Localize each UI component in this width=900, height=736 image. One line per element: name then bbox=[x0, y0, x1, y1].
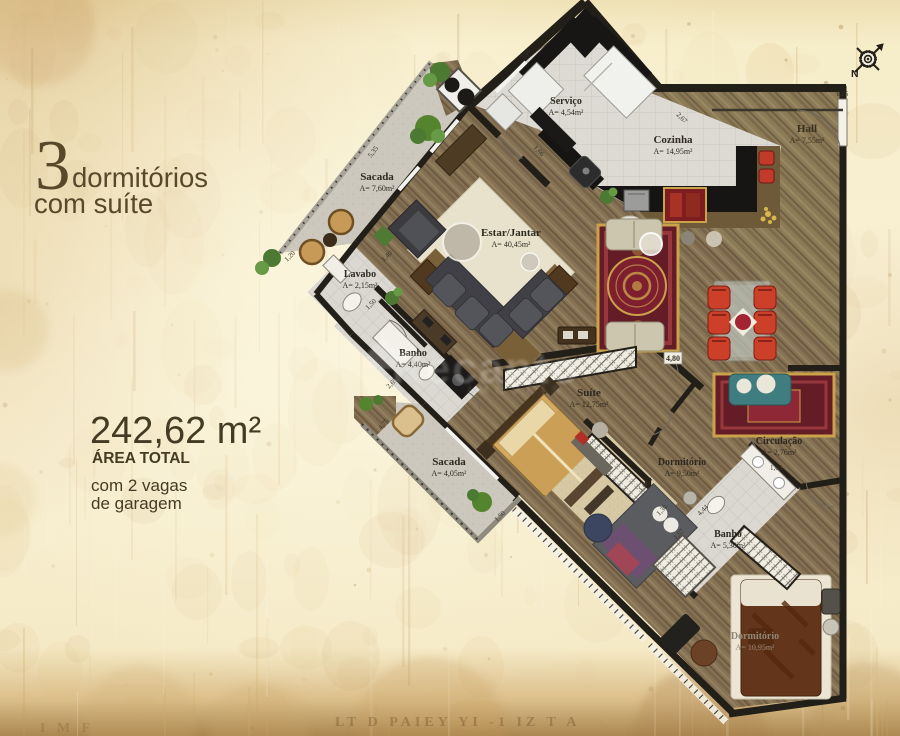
svg-text:Circulação: Circulação bbox=[756, 436, 802, 447]
svg-text:A= 7,55m²: A= 7,55m² bbox=[790, 136, 826, 145]
svg-text:com 2 vagas: com 2 vagas bbox=[91, 476, 187, 495]
svg-text:4,80: 4,80 bbox=[666, 354, 680, 363]
svg-text:1,05: 1,05 bbox=[770, 464, 783, 472]
svg-text:A= 7,60m²: A= 7,60m² bbox=[360, 184, 396, 193]
svg-text:Estar/Jantar: Estar/Jantar bbox=[481, 227, 541, 239]
svg-text:Sacada: Sacada bbox=[432, 456, 466, 468]
svg-text:A= 5,30m²: A= 5,30m² bbox=[711, 541, 747, 550]
svg-text:A= 2,15m²: A= 2,15m² bbox=[343, 281, 379, 290]
svg-text:A= 10,95m²: A= 10,95m² bbox=[736, 643, 776, 652]
svg-text:A= 2,76m²: A= 2,76m² bbox=[762, 448, 798, 457]
svg-text:com suíte: com suíte bbox=[34, 188, 153, 219]
svg-text:A= 40,45m²: A= 40,45m² bbox=[492, 240, 532, 249]
svg-text:A= 12,75m²: A= 12,75m² bbox=[570, 400, 610, 409]
svg-text:A= 14,95m²: A= 14,95m² bbox=[654, 147, 694, 156]
svg-text:A= 4,05m²: A= 4,05m² bbox=[432, 469, 468, 478]
svg-text:IMÓVEIS: IMÓVEIS bbox=[468, 382, 567, 397]
svg-text:ÁREA TOTAL: ÁREA TOTAL bbox=[92, 450, 190, 467]
svg-text:N: N bbox=[851, 68, 859, 80]
svg-text:242,62 m²: 242,62 m² bbox=[90, 410, 261, 452]
svg-text:Cozinha: Cozinha bbox=[653, 134, 693, 146]
svg-text:A= 4,54m²: A= 4,54m² bbox=[549, 108, 585, 117]
svg-text:Sacada: Sacada bbox=[360, 171, 394, 183]
svg-text:A= 9,50m²: A= 9,50m² bbox=[665, 469, 701, 478]
svg-text:Dormitório: Dormitório bbox=[731, 631, 779, 642]
svg-text:Suíte: Suíte bbox=[577, 387, 601, 399]
svg-text:I M F: I M F bbox=[40, 721, 94, 736]
svg-text:Banho: Banho bbox=[714, 529, 742, 540]
svg-text:LT D PAIEY YI -1 IZ T A: LT D PAIEY YI -1 IZ T A bbox=[335, 715, 580, 730]
svg-text:Dormitório: Dormitório bbox=[658, 457, 706, 468]
svg-text:de garagem: de garagem bbox=[91, 494, 182, 513]
svg-text:Hall: Hall bbox=[797, 123, 817, 135]
svg-text:Serviço: Serviço bbox=[550, 96, 582, 107]
svg-text:1,15: 1,15 bbox=[836, 90, 849, 98]
svg-text:Lavabo: Lavabo bbox=[344, 269, 376, 280]
